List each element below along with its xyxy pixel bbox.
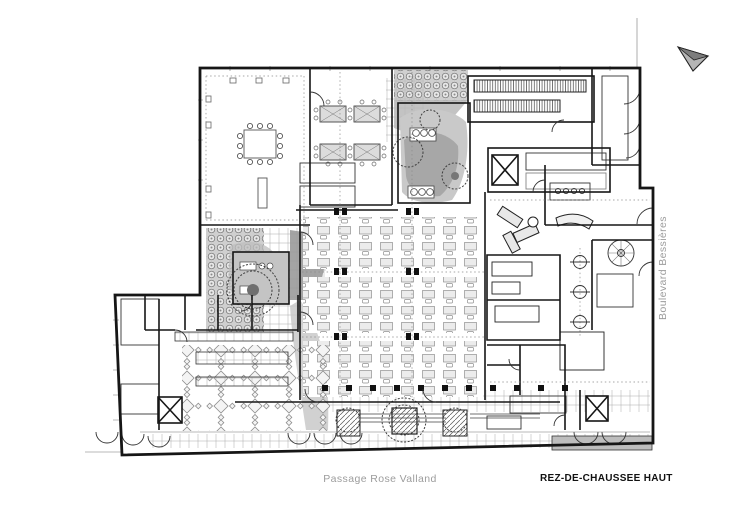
conference-table (237, 123, 282, 208)
bike-storage (468, 76, 594, 122)
street-label-passage-rose-valland: Passage Rose Valland (323, 473, 436, 485)
reception-desk (556, 214, 593, 229)
street-label-boulevard-bessieres: Boulevard Bessières (657, 216, 669, 320)
floor-plan-drawing (0, 0, 750, 530)
wall-chairs (206, 78, 289, 218)
meeting-tables (314, 100, 386, 166)
reading-hall-desk-band-2 (303, 277, 483, 333)
spiral-stair (608, 240, 634, 266)
north-arrow-icon (678, 47, 708, 71)
plan-title: REZ-DE-CHAUSSEE HAUT (540, 473, 673, 484)
room-furniture (492, 262, 604, 370)
floor-plan-canvas: Passage Rose Valland REZ-DE-CHAUSSEE HAU… (0, 0, 750, 530)
patio (233, 252, 289, 304)
reading-hall-desk-band-1 (303, 217, 483, 269)
lounge-furniture (497, 206, 539, 253)
